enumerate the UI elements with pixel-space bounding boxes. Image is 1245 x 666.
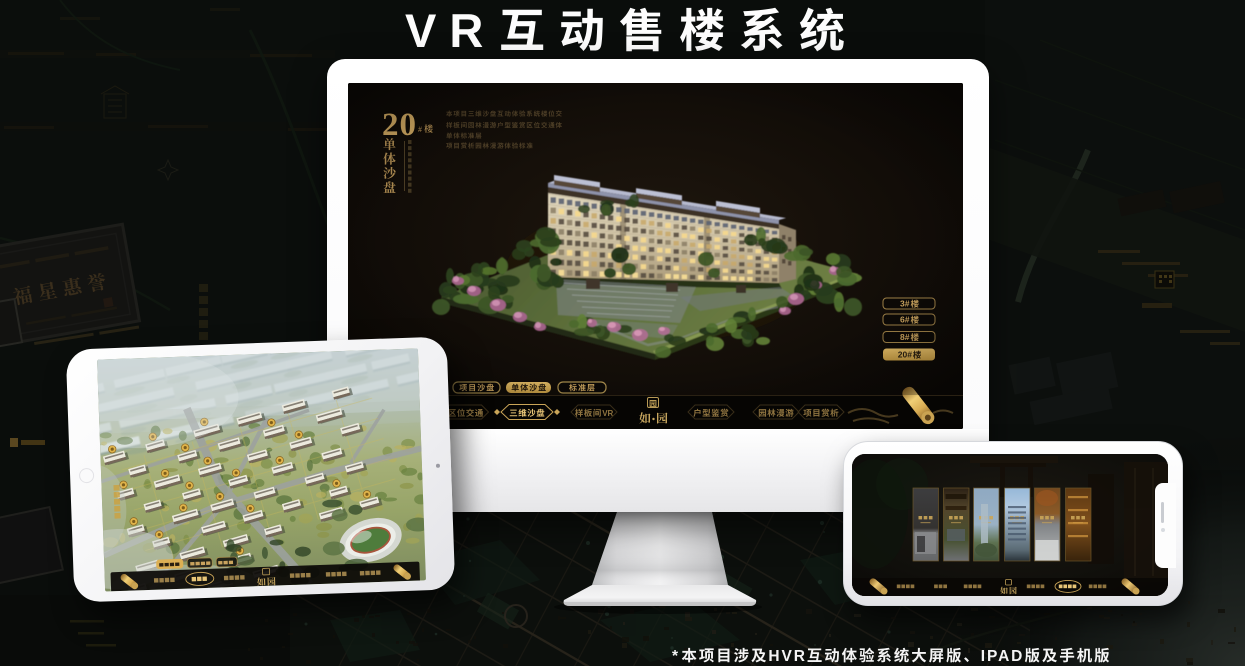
svg-text:*: * <box>672 648 679 665</box>
svg-text:VR: VR <box>405 4 496 57</box>
svg-text:HVR: HVR <box>768 648 806 665</box>
svg-text:IPAD: IPAD <box>981 648 1024 665</box>
